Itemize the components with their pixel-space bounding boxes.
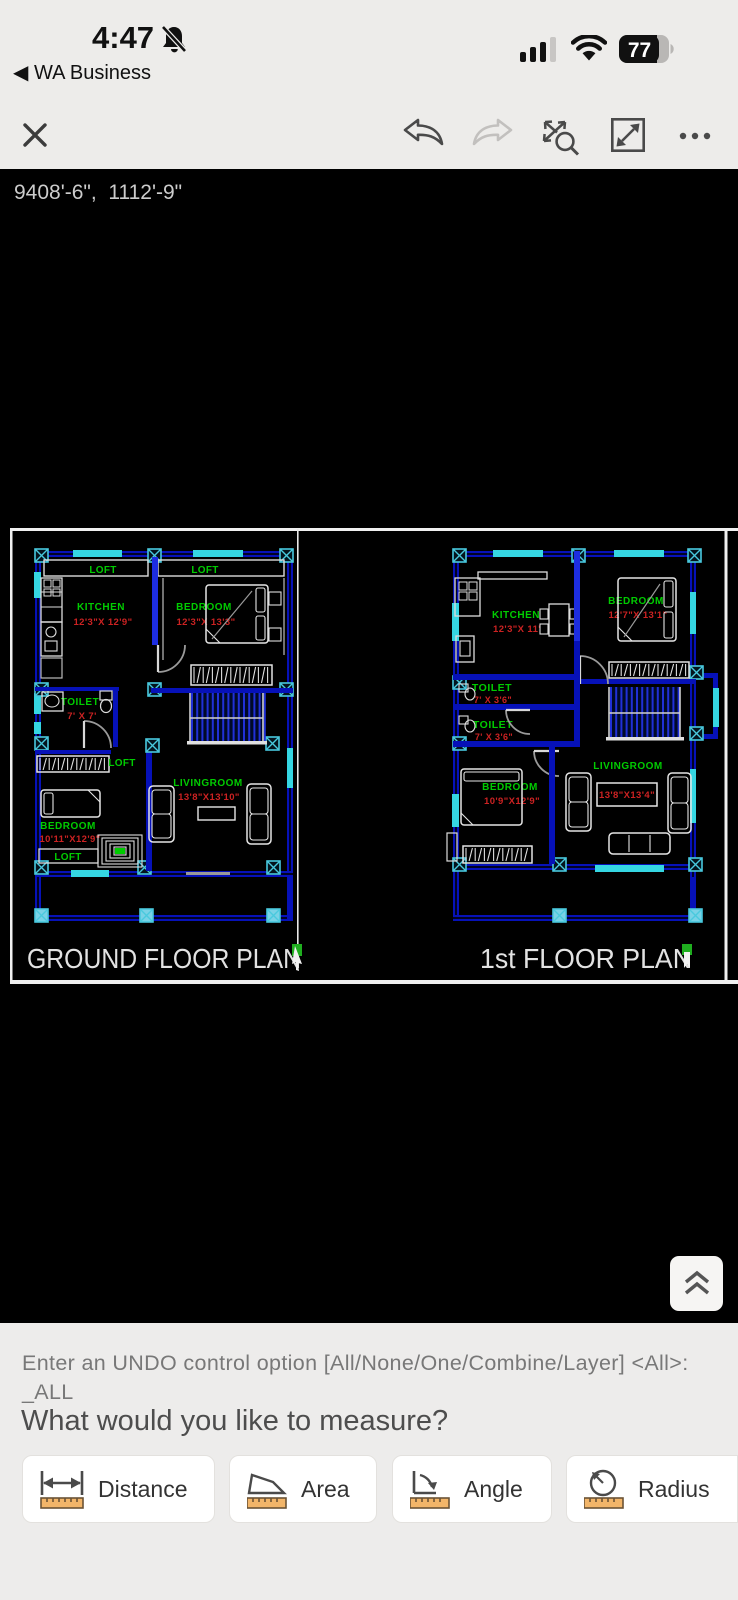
svg-text:77: 77 (628, 39, 651, 62)
svg-text:12'3"X 12'9": 12'3"X 12'9" (73, 617, 132, 628)
svg-text:GROUND FLOOR PLAN: GROUND FLOOR PLAN (27, 943, 301, 974)
svg-text:7' X 7': 7' X 7' (67, 711, 97, 722)
svg-text:TOILET: TOILET (61, 697, 99, 708)
svg-text:BEDROOM: BEDROOM (176, 602, 232, 613)
svg-text:LOFT: LOFT (89, 565, 116, 576)
svg-text:10'11"X12'9": 10'11"X12'9" (39, 834, 100, 845)
svg-text:BEDROOM: BEDROOM (482, 782, 538, 793)
svg-text:BEDROOM: BEDROOM (40, 821, 96, 832)
svg-text:13'8"X13'10": 13'8"X13'10" (178, 792, 240, 803)
svg-text:1st FLOOR PLAN: 1st FLOOR PLAN (480, 943, 692, 974)
svg-text:LIVINGROOM: LIVINGROOM (173, 778, 242, 789)
svg-text:7' X 3'6": 7' X 3'6" (475, 732, 513, 742)
svg-text:7' X 3'6": 7' X 3'6" (474, 695, 512, 705)
svg-text:KITCHEN: KITCHEN (77, 602, 125, 613)
svg-text:TOILET: TOILET (473, 719, 513, 731)
svg-text:LOFT: LOFT (108, 758, 135, 769)
svg-text:13'8"X13'4": 13'8"X13'4" (599, 790, 655, 801)
svg-text:12'3"X 11': 12'3"X 11' (493, 624, 541, 635)
svg-text:BEDROOM: BEDROOM (608, 596, 664, 607)
svg-text:LIVINGROOM: LIVINGROOM (593, 761, 662, 772)
svg-text:LOFT: LOFT (191, 565, 218, 576)
svg-text:KITCHEN: KITCHEN (492, 610, 540, 621)
svg-text:10'9"X12'9": 10'9"X12'9" (484, 796, 540, 807)
svg-text:TOILET: TOILET (472, 682, 512, 694)
svg-text:LOFT: LOFT (54, 852, 81, 863)
